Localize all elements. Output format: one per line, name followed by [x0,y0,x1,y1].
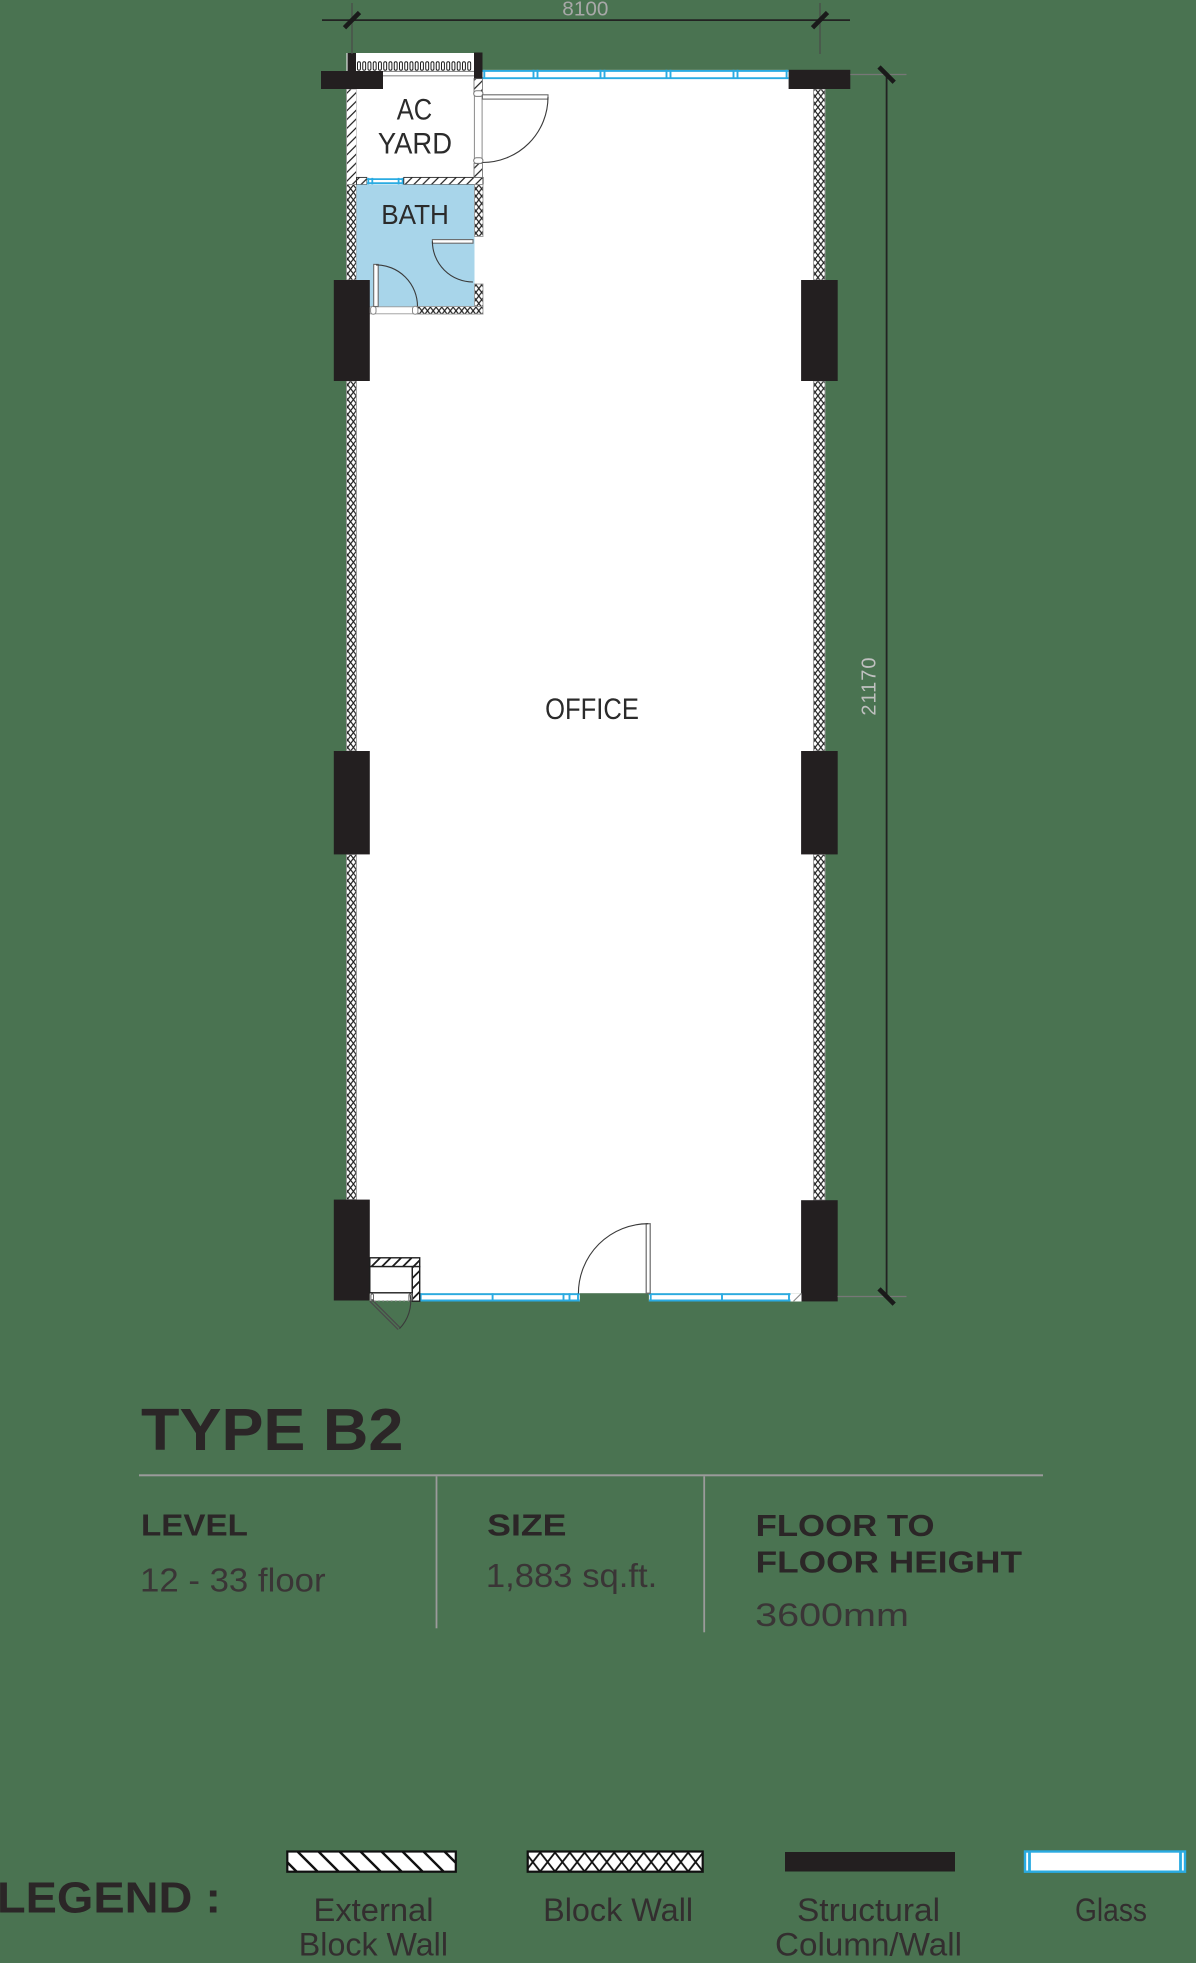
svg-text:SIZE: SIZE [487,1508,566,1543]
svg-text:LEGEND :: LEGEND : [0,1874,221,1923]
svg-text:Block Wall: Block Wall [299,1926,448,1958]
svg-text:TYPE B2: TYPE B2 [141,1397,403,1463]
svg-text:External: External [314,1892,434,1928]
svg-text:Glass: Glass [1075,1892,1147,1928]
svg-text:OFFICE: OFFICE [545,693,639,726]
svg-text:Structural: Structural [797,1892,940,1928]
svg-text:3600mm: 3600mm [755,1597,909,1633]
svg-text:8100: 8100 [562,0,608,21]
svg-text:LEVEL: LEVEL [141,1508,248,1543]
svg-text:YARD: YARD [378,128,452,161]
svg-text:AC: AC [397,93,432,126]
svg-text:12 - 33 floor: 12 - 33 floor [140,1561,326,1598]
svg-text:1,883 sq.ft.: 1,883 sq.ft. [486,1557,657,1594]
svg-text:21170: 21170 [859,656,881,715]
svg-text:FLOOR HEIGHT: FLOOR HEIGHT [756,1545,1022,1580]
svg-text:BATH: BATH [381,199,449,230]
svg-text:Column/Wall: Column/Wall [775,1926,962,1958]
svg-text:FLOOR TO: FLOOR TO [756,1508,935,1543]
svg-text:Block Wall: Block Wall [543,1892,693,1928]
